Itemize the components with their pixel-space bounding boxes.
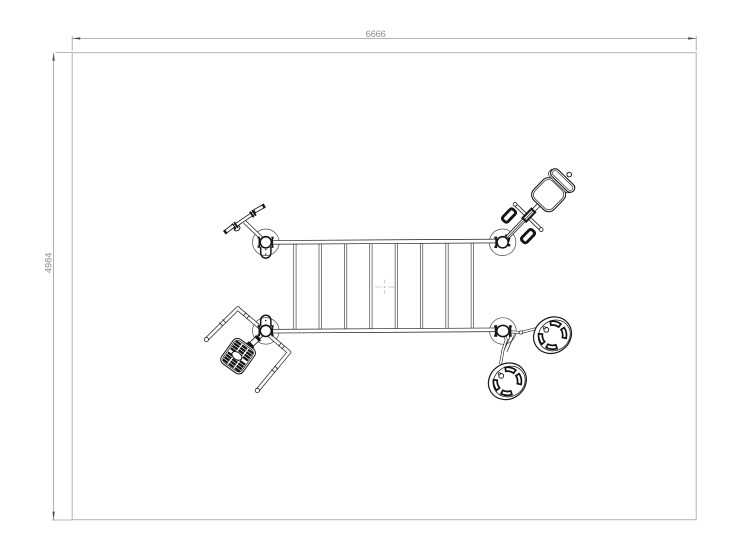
svg-text:4984: 4984	[44, 253, 54, 273]
svg-text:6666: 6666	[366, 29, 386, 39]
